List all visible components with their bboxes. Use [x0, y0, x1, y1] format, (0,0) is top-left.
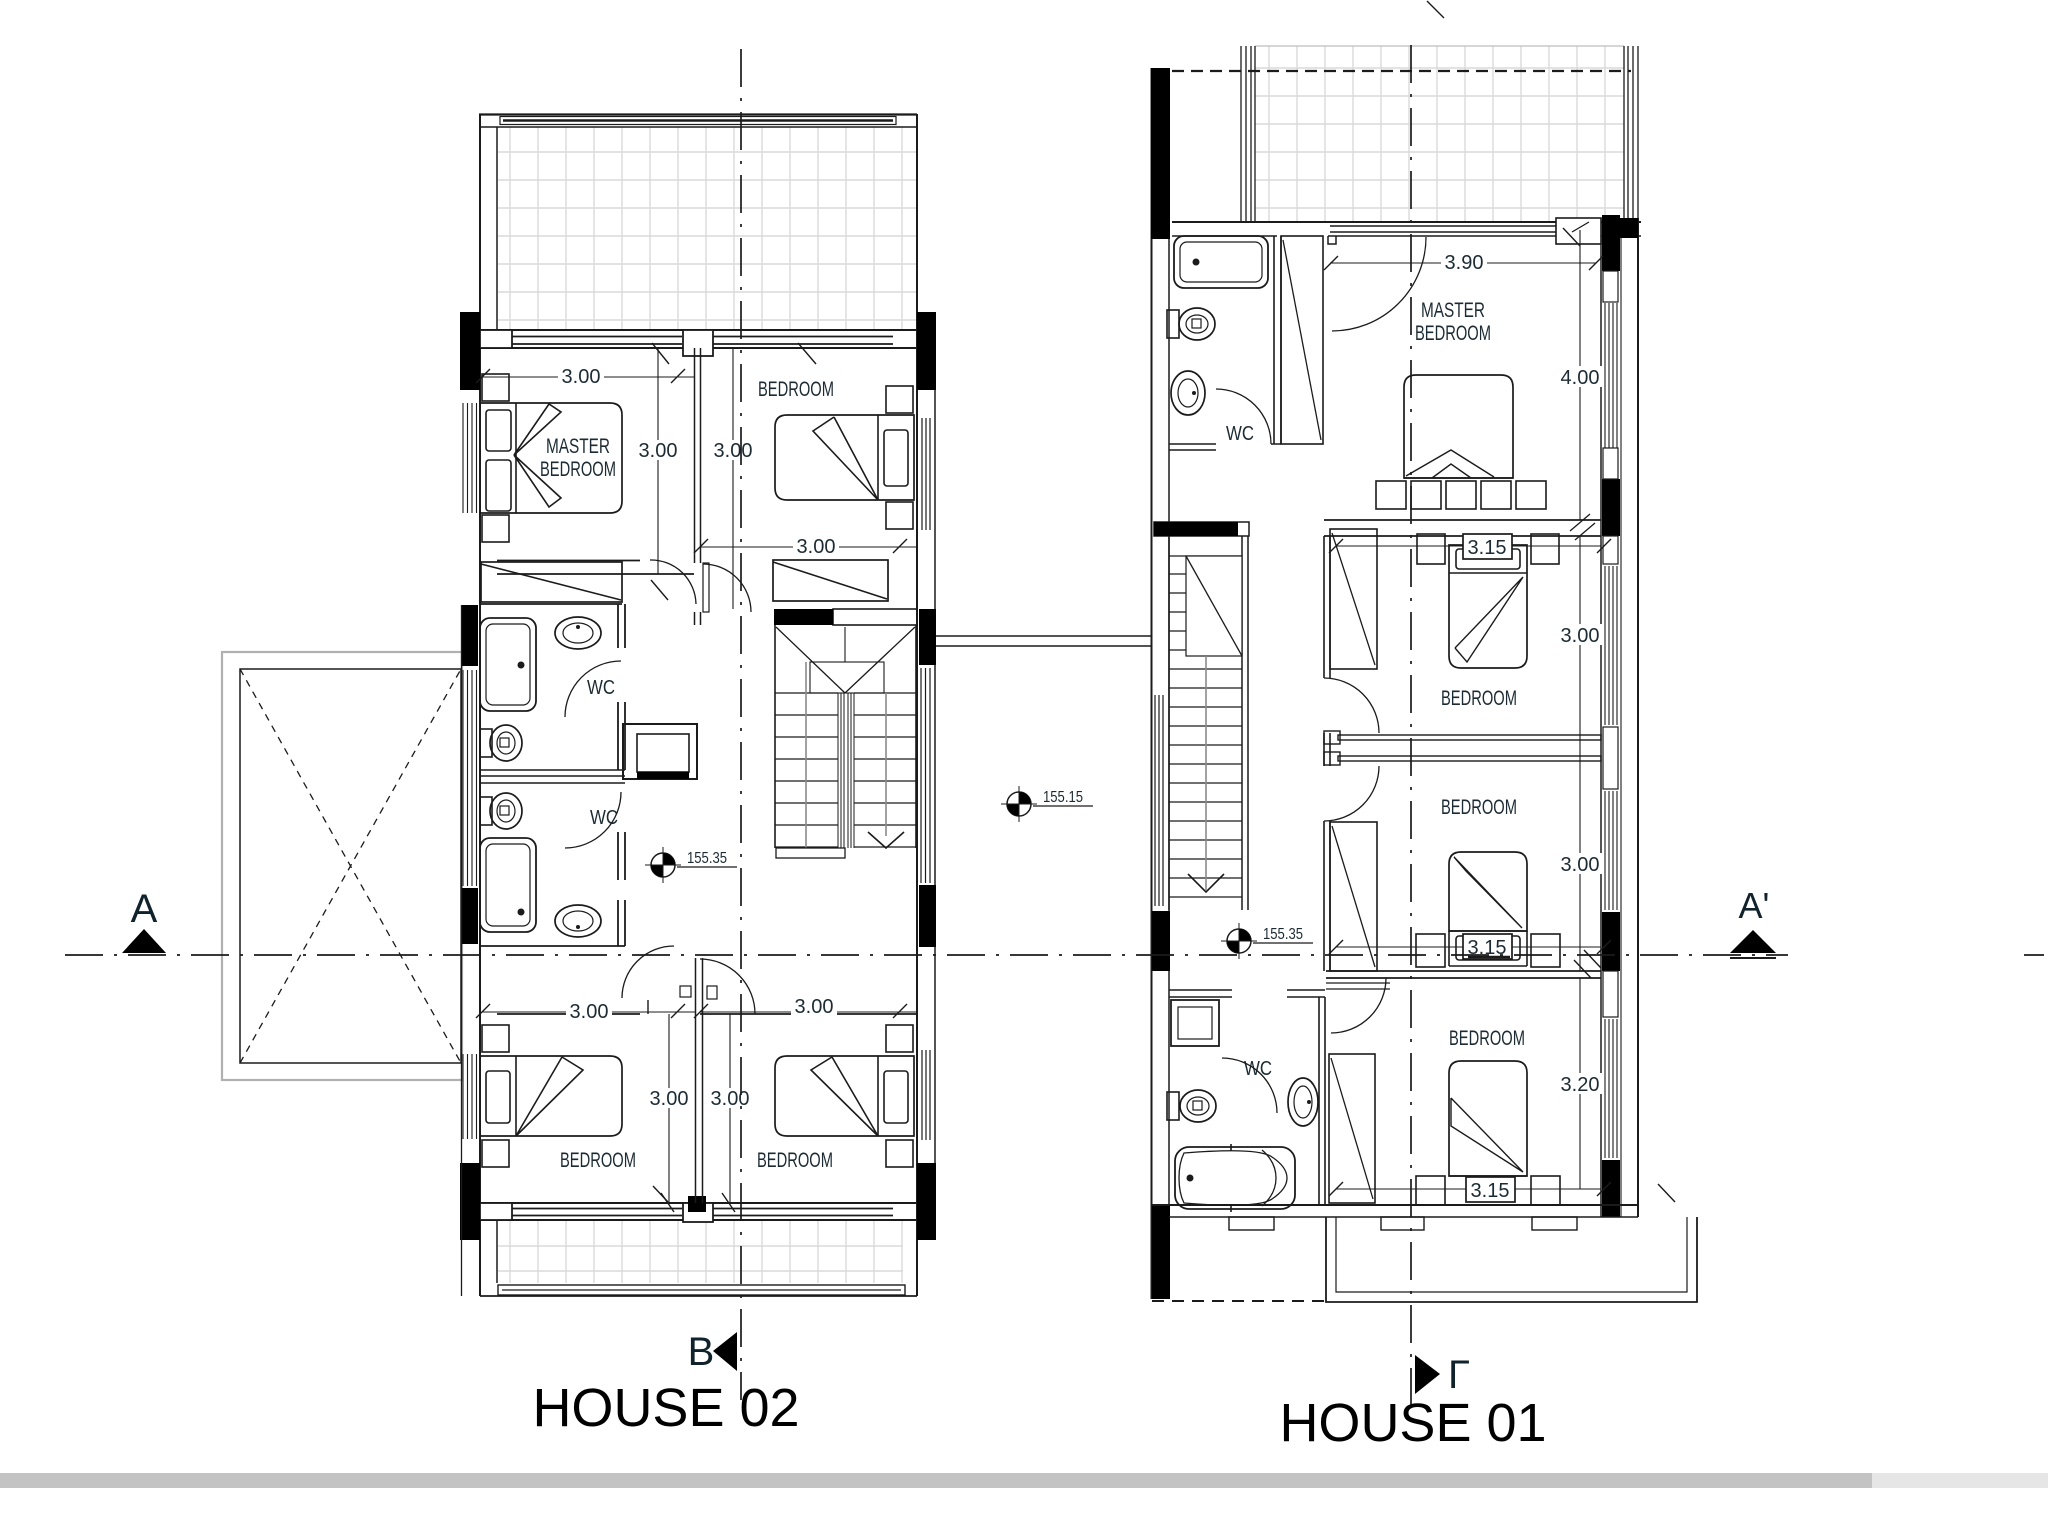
svg-text:HOUSE 01: HOUSE 01: [1279, 1393, 1546, 1453]
svg-text:WC: WC: [1226, 423, 1254, 445]
svg-text:3.00: 3.00: [714, 440, 753, 462]
svg-text:BEDROOM: BEDROOM: [1415, 322, 1491, 345]
svg-text:3.15: 3.15: [1468, 537, 1507, 559]
svg-text:BEDROOM: BEDROOM: [1441, 796, 1517, 819]
svg-text:BEDROOM: BEDROOM: [540, 458, 616, 481]
svg-text:155.35: 155.35: [1263, 926, 1303, 943]
svg-text:3.00: 3.00: [795, 996, 834, 1018]
svg-text:155.15: 155.15: [1043, 789, 1083, 806]
svg-text:WC: WC: [1244, 1058, 1272, 1080]
svg-text:WC: WC: [590, 807, 618, 829]
svg-text:3.00: 3.00: [570, 1001, 609, 1023]
svg-text:WC: WC: [587, 677, 615, 699]
svg-text:BEDROOM: BEDROOM: [560, 1149, 636, 1172]
svg-text:MASTER: MASTER: [546, 435, 610, 458]
svg-text:A': A': [1739, 885, 1770, 926]
svg-text:BEDROOM: BEDROOM: [758, 378, 834, 401]
svg-text:A: A: [131, 887, 158, 931]
svg-text:B: B: [688, 1330, 715, 1374]
svg-text:3.00: 3.00: [639, 440, 678, 462]
svg-text:MASTER: MASTER: [1421, 299, 1485, 322]
svg-text:4.00: 4.00: [1561, 367, 1600, 389]
svg-text:3.00: 3.00: [1561, 625, 1600, 647]
svg-text:3.20: 3.20: [1561, 1074, 1600, 1096]
svg-text:BEDROOM: BEDROOM: [1441, 687, 1517, 710]
svg-text:3.00: 3.00: [562, 366, 601, 388]
svg-text:155.35: 155.35: [687, 850, 727, 867]
svg-text:3.00: 3.00: [1561, 854, 1600, 876]
svg-text:HOUSE 02: HOUSE 02: [532, 1378, 799, 1438]
svg-text:3.00: 3.00: [797, 536, 836, 558]
svg-text:3.15: 3.15: [1471, 1180, 1510, 1202]
svg-text:3.00: 3.00: [711, 1088, 750, 1110]
svg-text:BEDROOM: BEDROOM: [757, 1149, 833, 1172]
svg-text:3.90: 3.90: [1445, 252, 1484, 274]
svg-text:Γ: Γ: [1448, 1353, 1470, 1397]
svg-text:BEDROOM: BEDROOM: [1449, 1027, 1525, 1050]
svg-text:3.00: 3.00: [650, 1088, 689, 1110]
